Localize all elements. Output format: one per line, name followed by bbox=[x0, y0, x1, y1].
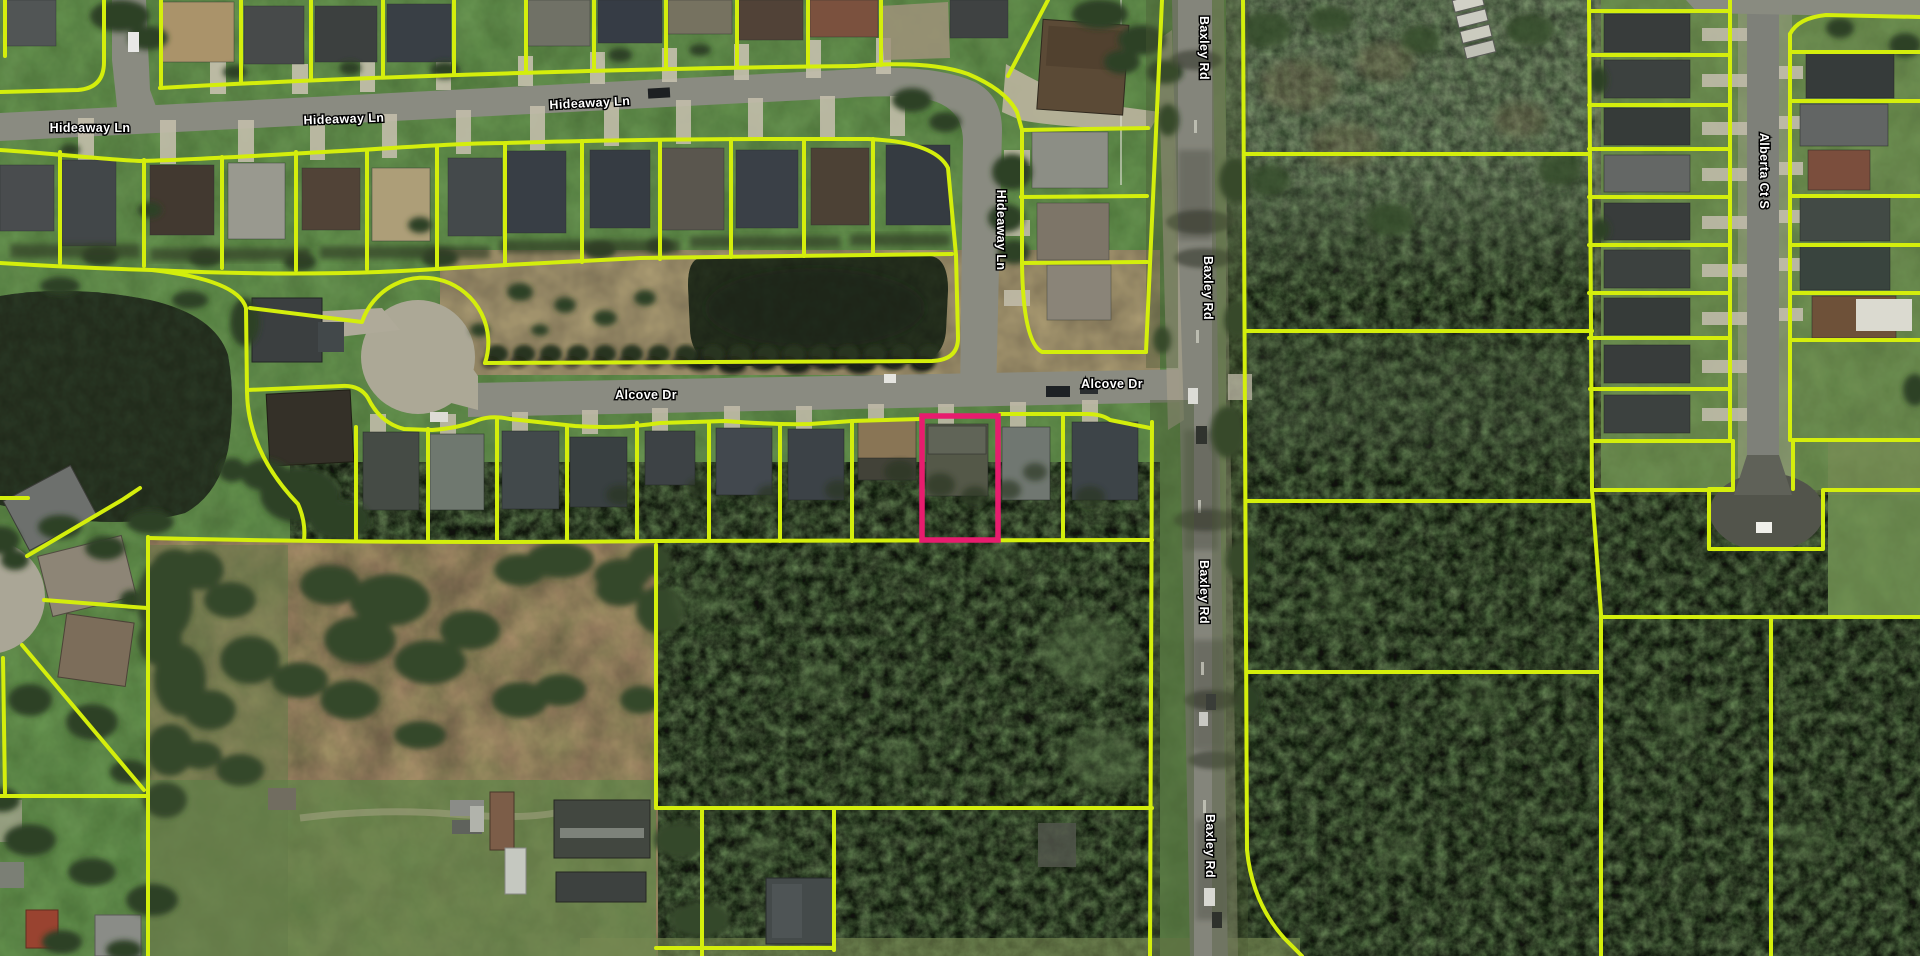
svg-text:Baxley Rd: Baxley Rd bbox=[1197, 560, 1211, 624]
svg-text:Alcove Dr: Alcove Dr bbox=[1081, 377, 1143, 391]
svg-text:Hideaway Ln: Hideaway Ln bbox=[303, 111, 384, 128]
svg-text:Hideaway Ln: Hideaway Ln bbox=[994, 190, 1008, 271]
svg-text:Alcove Dr: Alcove Dr bbox=[615, 388, 677, 402]
svg-text:Baxley Rd: Baxley Rd bbox=[1203, 814, 1217, 878]
svg-text:Alberta Ct S: Alberta Ct S bbox=[1757, 133, 1771, 209]
svg-text:Baxley Rd: Baxley Rd bbox=[1197, 16, 1211, 80]
svg-text:Hideaway Ln: Hideaway Ln bbox=[50, 121, 131, 135]
svg-text:Baxley Rd: Baxley Rd bbox=[1201, 256, 1215, 320]
